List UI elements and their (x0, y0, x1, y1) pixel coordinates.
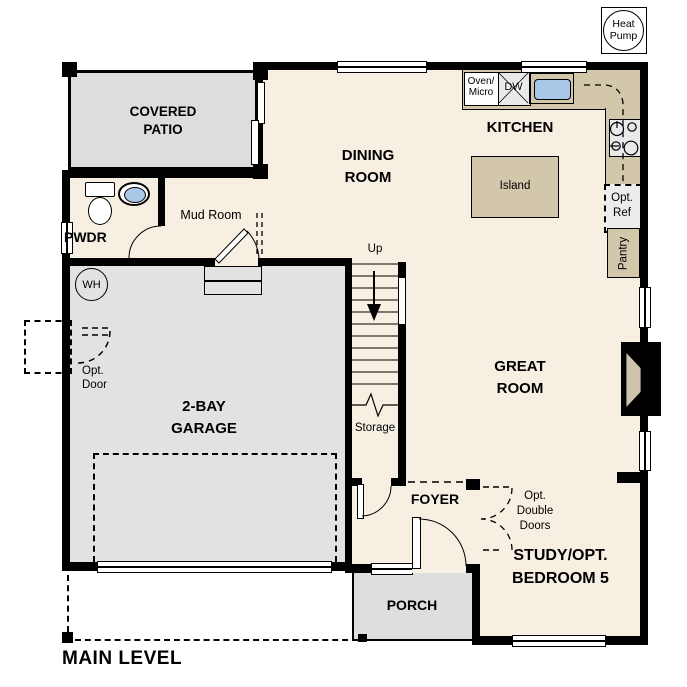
garage-label: 2-BAY GARAGE (130, 396, 278, 440)
dining-room-label: DINING ROOM (300, 145, 436, 189)
kitchen-label: KITCHEN (455, 119, 585, 136)
heat-pump-circle: Heat Pump (603, 10, 644, 51)
mud-room-label: Mud Room (178, 208, 244, 222)
floor-plan: Oven/ Micro DW Opt. Ref Pantry Island W (0, 0, 687, 687)
front-door-arc (419, 519, 466, 566)
mud-door-leaf (215, 229, 248, 263)
powder-label: PWDR (64, 229, 126, 245)
storage-door-arc (362, 486, 391, 516)
opt-door-label: Opt. Door (82, 364, 118, 392)
storage-label: Storage (345, 422, 405, 434)
cooktop-burners (610, 121, 638, 155)
porch-label: PORCH (352, 597, 472, 613)
heat-pump-label: Heat Pump (610, 19, 637, 42)
opt-door-arc (78, 331, 110, 363)
great-room-label: GREAT ROOM (455, 356, 585, 400)
opt-double-doors-label: Opt. Double Doors (502, 489, 568, 534)
fireplace-firebox (626, 352, 641, 408)
foyer-label: FOYER (404, 491, 466, 507)
covered-patio-label: COVERED PATIO (88, 103, 238, 139)
up-label: Up (352, 243, 398, 255)
main-level-title: MAIN LEVEL (62, 648, 282, 670)
kitchen-cabinet-dash (584, 85, 623, 182)
heat-pump-badge: Heat Pump (601, 7, 647, 54)
powder-door-arc (129, 226, 161, 258)
stairs-break-line (352, 394, 398, 416)
study-label: STUDY/OPT. BEDROOM 5 (478, 544, 643, 590)
